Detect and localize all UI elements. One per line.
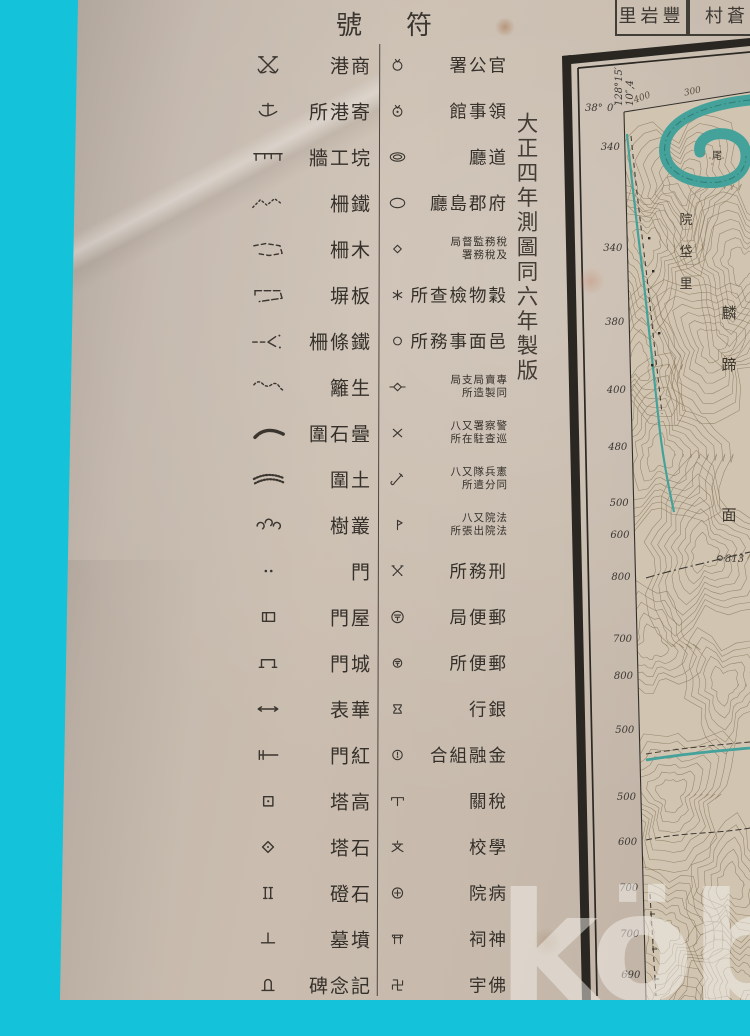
- legend-label-left: 塔高: [286, 788, 372, 815]
- legend-label-left: 塀板: [286, 282, 372, 309]
- legend-row: 樹叢八又院法所張出院法: [0, 502, 540, 548]
- legend-label-right: 廳道: [404, 145, 508, 170]
- legend-label-right: 校學: [404, 835, 508, 860]
- legend-label-right: 院病: [404, 881, 508, 906]
- paper-stain: [494, 18, 516, 36]
- legend-row: 門城所便郵: [0, 640, 540, 686]
- edge-contour-label: 800: [614, 671, 634, 682]
- legend-row: 塔高關稅: [0, 778, 540, 824]
- legend-label-right: 關稅: [404, 789, 508, 814]
- legend-label-left: 柵條鐵: [286, 328, 372, 355]
- legend-label-right: 局便郵: [404, 605, 508, 630]
- legend-row: 門所務刑: [0, 548, 540, 594]
- legend-label-left: 墓墳: [286, 926, 372, 953]
- legend-label-right: 祠神: [404, 927, 508, 952]
- edge-contour-label: 340: [603, 243, 623, 254]
- legend-title: 號符: [336, 5, 476, 42]
- legend-label-left: 籬生: [286, 374, 372, 401]
- legend-row: 所港寄館事領: [0, 88, 540, 134]
- edge-contour-label: 700: [613, 634, 633, 645]
- legend-row: 柵鐵廳島郡府: [0, 180, 540, 226]
- adjoining-sheet-tab-2: 村蒼: [688, 0, 750, 36]
- legend-label-left: 門屋: [286, 604, 372, 631]
- legend-label-left: 門紅: [286, 742, 372, 769]
- legend-label-left: 磴石: [286, 880, 372, 907]
- legend-label-left: 圍土: [286, 466, 372, 493]
- map-paper-sheet: 號符 港商署公官所港寄館事領牆工垸廳道柵鐵廳島郡府柵木局督監務稅署務稅及塀板所查…: [0, 0, 750, 1000]
- legend-label-right: 館事領: [404, 99, 508, 124]
- legend-row: 表華行銀: [0, 686, 540, 732]
- corner-longitude: 128°15′: [614, 66, 625, 106]
- legend-label-left: 柵木: [286, 236, 372, 263]
- legend-row: 塔石校學: [0, 824, 540, 870]
- legend-label-right: 所便郵: [404, 651, 508, 676]
- top-contour-label: 300: [683, 85, 702, 98]
- legend-label-left: 表華: [286, 696, 372, 723]
- legend-label-right: 廳島郡府: [404, 191, 508, 216]
- legend-row: 柵木局督監務稅署務稅及: [0, 226, 540, 272]
- place-label-district: 面: [721, 508, 736, 524]
- legend-label-right: 八又署察警所在駐查巡: [404, 420, 508, 446]
- edge-contour-label: 380: [605, 317, 625, 328]
- legend-row: 圍土八又隊兵憲所遣分同: [0, 456, 540, 502]
- legend-row: 塀板所查檢物穀: [0, 272, 540, 318]
- legend-label-left: 碑念記: [286, 972, 372, 999]
- edge-contour-label: 600: [610, 530, 630, 541]
- legend-label-right: 局督監務稅署務稅及: [404, 236, 508, 262]
- legend-row: 磴石院病: [0, 870, 540, 916]
- legend-label-left: 樹叢: [286, 512, 372, 539]
- place-label-village: 院: [679, 212, 692, 227]
- place-label-district: 麟: [721, 305, 736, 322]
- legend-label-left: 門城: [286, 650, 372, 677]
- legend-label-right: 行銀: [404, 697, 508, 722]
- legend-label-right: 所務事面邑: [404, 329, 508, 354]
- legend-label-right: 八又院法所張出院法: [404, 512, 508, 538]
- place-label-district: 蹄: [721, 357, 736, 374]
- legend-label-right: 局支局賣專所造製同: [404, 374, 508, 400]
- adjoining-sheet-label: 村蒼: [705, 2, 749, 28]
- edge-contour-label: 500: [615, 725, 635, 736]
- legend-label-left: 門: [286, 558, 372, 585]
- legend-row: 港商署公官: [0, 42, 540, 88]
- adjoining-sheet-label: 里岩豐: [619, 2, 685, 28]
- survey-imprint: 大正四年測圖同六年製版: [511, 112, 542, 422]
- legend-row: 牆工垸廳道: [0, 134, 540, 180]
- legend-label-left: 港商: [286, 52, 372, 79]
- legend-row: 門屋局便郵: [0, 594, 540, 640]
- legend-label-right: 宇佛: [404, 973, 508, 998]
- legend-label-left: 所港寄: [286, 98, 372, 125]
- edge-contour-label: 500: [617, 792, 637, 803]
- edge-contour-label: 600: [618, 837, 638, 848]
- spot-height-label: 813: [725, 554, 744, 565]
- adjoining-sheet-tab-1: 里岩豐: [615, 0, 688, 36]
- place-label-village: 里: [679, 276, 692, 291]
- legend-label-left: 塔石: [286, 834, 372, 861]
- place-label-village: 垈: [679, 244, 692, 259]
- legend-row: 圍石曡八又署察警所在駐查巡: [0, 410, 540, 456]
- place-label-island: 尾: [712, 150, 722, 162]
- edge-contour-label: 400: [606, 385, 627, 396]
- legend-label-left: 圍石曡: [286, 420, 372, 447]
- topographic-map: 813 38° 0′ 128°15′ 10″,4 340340380400480…: [552, 34, 750, 1000]
- edge-contour-label: 800: [611, 572, 631, 583]
- corner-latitude: 38°: [585, 103, 603, 114]
- watermark: köb: [498, 862, 750, 1036]
- edge-contour-label: 340: [601, 142, 621, 153]
- legend-label-left: 牆工垸: [286, 144, 372, 171]
- legend-label-right: 八又隊兵憲所遣分同: [404, 466, 508, 492]
- legend-row: 門紅合組融金: [0, 732, 540, 778]
- legend-label-right: 所務刑: [404, 559, 508, 584]
- legend-label-right: 所查檢物穀: [404, 283, 508, 308]
- legend-row: 墓墳祠神: [0, 916, 540, 962]
- legend-label-right: 合組融金: [404, 743, 508, 768]
- legend-row: 籬生局支局賣專所造製同: [0, 364, 540, 410]
- edge-contour-label: 500: [610, 498, 630, 509]
- legend-row: 碑念記宇佛: [0, 962, 540, 1008]
- edge-contour-label: 480: [607, 442, 628, 453]
- legend-row: 柵條鐵所務事面邑: [0, 318, 540, 364]
- legend-label-left: 柵鐵: [286, 190, 372, 217]
- legend-label-right: 署公官: [404, 53, 508, 78]
